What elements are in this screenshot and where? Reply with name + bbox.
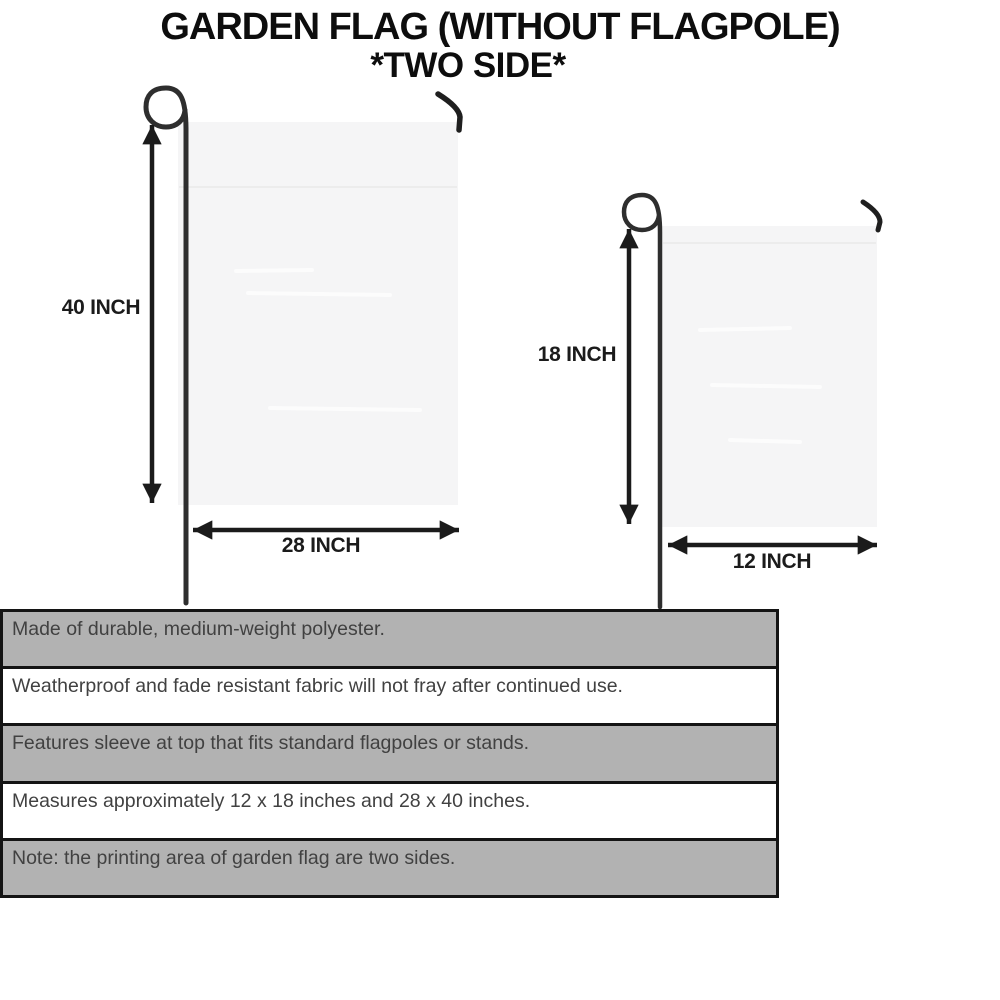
small-flag-hook-icon xyxy=(863,202,880,230)
feature-row: Note: the printing area of garden flag a… xyxy=(3,838,776,895)
small-flag-height-label: 18 INCH xyxy=(538,343,616,367)
large-flag-group xyxy=(146,88,460,603)
large-flag-wrinkle xyxy=(248,293,390,295)
small-flag-canvas xyxy=(662,226,877,527)
large-flag-wrinkle xyxy=(270,408,420,410)
small-flag-wrinkle xyxy=(700,328,790,330)
garden-flag-infographic: GARDEN FLAG (WITHOUT FLAGPOLE) *TWO SIDE… xyxy=(0,0,1000,1000)
small-flag-width-label: 12 INCH xyxy=(733,550,811,574)
features-table: Made of durable, medium-weight polyester… xyxy=(0,609,779,898)
large-flag-height-label: 40 INCH xyxy=(62,296,140,320)
feature-row: Features sleeve at top that fits standar… xyxy=(3,723,776,780)
large-flag-canvas xyxy=(178,122,458,505)
small-flag-group xyxy=(624,195,880,607)
large-flag-wrinkle xyxy=(236,270,312,271)
large-flag-width-label: 28 INCH xyxy=(282,534,360,558)
small-flag-wrinkle xyxy=(712,385,820,387)
feature-row: Made of durable, medium-weight polyester… xyxy=(3,612,776,666)
feature-row: Weatherproof and fade resistant fabric w… xyxy=(3,666,776,723)
small-flag-wrinkle xyxy=(730,440,800,442)
feature-row: Measures approximately 12 x 18 inches an… xyxy=(3,781,776,838)
